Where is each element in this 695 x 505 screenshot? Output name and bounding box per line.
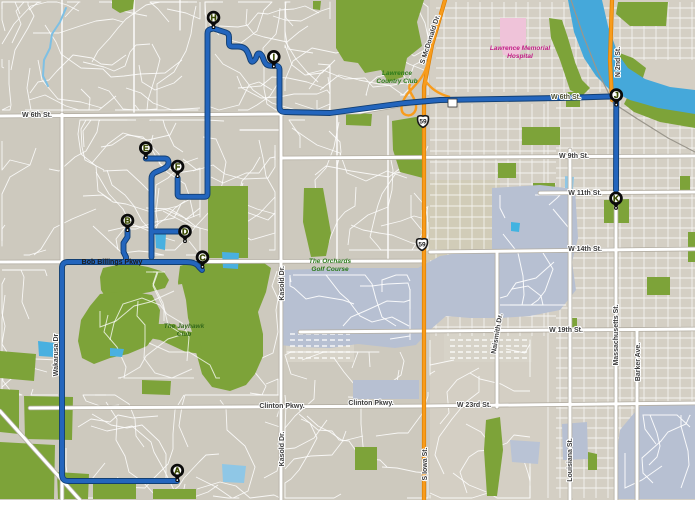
svg-text:J: J — [614, 90, 619, 100]
svg-text:Bob Billings Pkwy: Bob Billings Pkwy — [82, 259, 143, 266]
svg-text:Wakarusa Dr: Wakarusa Dr — [53, 333, 60, 376]
svg-text:Hospital: Hospital — [507, 53, 533, 60]
svg-text:W 6th St.: W 6th St. — [22, 112, 52, 119]
svg-text:H: H — [210, 13, 216, 23]
svg-text:W 23rd St.: W 23rd St. — [457, 402, 491, 409]
svg-text:Lawrence: Lawrence — [382, 70, 412, 77]
svg-text:W 14th St.: W 14th St. — [568, 246, 602, 253]
svg-text:F: F — [175, 162, 180, 172]
svg-text:Kasold Dr.: Kasold Dr. — [279, 266, 286, 301]
svg-text:I: I — [273, 52, 275, 62]
svg-text:W 6th St.: W 6th St. — [551, 94, 581, 101]
svg-text:Louisiana St.: Louisiana St. — [567, 438, 574, 482]
svg-text:Lawrence Memorial: Lawrence Memorial — [490, 45, 551, 52]
svg-text:Golf Course: Golf Course — [311, 266, 349, 273]
svg-text:The Jayhawk: The Jayhawk — [164, 323, 205, 330]
svg-text:W 11th St.: W 11th St. — [568, 190, 602, 197]
svg-text:Country Club: Country Club — [376, 78, 417, 85]
svg-text:S Iowa St.: S Iowa St. — [422, 447, 429, 480]
svg-text:E: E — [143, 143, 149, 153]
svg-text:Club: Club — [177, 331, 191, 338]
svg-text:A: A — [174, 466, 180, 476]
svg-text:D: D — [182, 227, 188, 237]
svg-text:C: C — [199, 252, 205, 262]
svg-text:K: K — [613, 193, 620, 203]
svg-text:B: B — [124, 216, 130, 226]
svg-text:W 19th St.: W 19th St. — [549, 327, 583, 334]
svg-text:Barker Ave.: Barker Ave. — [635, 343, 642, 381]
svg-text:W 9th St.: W 9th St. — [559, 153, 589, 160]
svg-text:The Orchards: The Orchards — [309, 258, 352, 265]
svg-text:59: 59 — [419, 119, 427, 126]
svg-text:Massachusetts St.: Massachusetts St. — [613, 304, 620, 365]
svg-text:Clinton Pkwy.: Clinton Pkwy. — [348, 400, 393, 407]
svg-text:59: 59 — [418, 242, 426, 249]
svg-text:Kasold Dr.: Kasold Dr. — [279, 432, 286, 467]
svg-text:N 2nd St.: N 2nd St. — [615, 47, 622, 77]
svg-text:Clinton Pkwy.: Clinton Pkwy. — [259, 403, 304, 410]
